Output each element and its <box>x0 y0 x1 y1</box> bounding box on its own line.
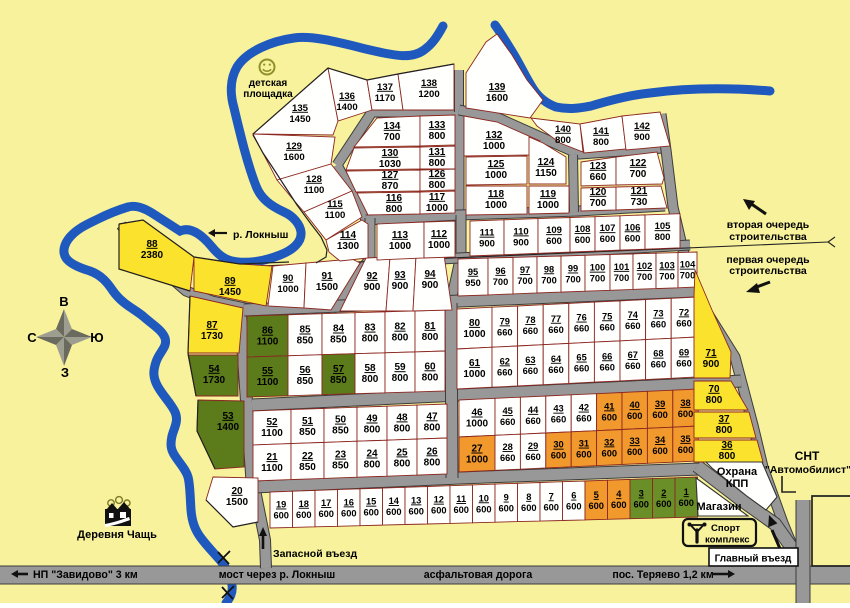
svg-text:59: 59 <box>394 362 406 373</box>
svg-text:79: 79 <box>500 316 510 326</box>
svg-text:Деревня Чащь: Деревня Чащь <box>77 529 157 541</box>
svg-text:43: 43 <box>553 404 563 414</box>
svg-text:660: 660 <box>676 318 692 328</box>
svg-text:102: 102 <box>637 261 653 271</box>
svg-text:1170: 1170 <box>375 93 396 104</box>
svg-text:135: 135 <box>292 103 309 114</box>
svg-text:1450: 1450 <box>289 114 310 125</box>
svg-text:Главный въезд: Главный въезд <box>715 554 792 565</box>
svg-text:33: 33 <box>630 436 640 446</box>
svg-text:6: 6 <box>571 491 576 501</box>
svg-text:30: 30 <box>553 440 563 450</box>
svg-text:850: 850 <box>299 462 316 473</box>
svg-text:800: 800 <box>392 373 409 384</box>
svg-text:660: 660 <box>497 367 513 377</box>
svg-text:88: 88 <box>146 239 158 250</box>
svg-text:900: 900 <box>479 239 495 250</box>
svg-text:850: 850 <box>330 375 347 386</box>
svg-text:3: 3 <box>639 489 644 499</box>
svg-text:600: 600 <box>546 236 562 247</box>
svg-text:111: 111 <box>480 228 496 239</box>
svg-text:1000: 1000 <box>485 200 508 211</box>
svg-text:р. Локныш: р. Локныш <box>233 229 288 241</box>
svg-text:44: 44 <box>528 405 539 415</box>
svg-text:800: 800 <box>392 333 409 344</box>
svg-text:45: 45 <box>503 406 513 416</box>
svg-text:600: 600 <box>678 498 694 508</box>
svg-text:1100: 1100 <box>325 210 346 221</box>
svg-text:86: 86 <box>262 326 274 337</box>
svg-text:100: 100 <box>590 263 606 273</box>
svg-text:76: 76 <box>576 313 586 323</box>
svg-text:660: 660 <box>525 416 541 426</box>
svg-text:115: 115 <box>327 199 343 210</box>
svg-text:83: 83 <box>364 323 376 334</box>
svg-text:96: 96 <box>495 266 505 276</box>
svg-text:600: 600 <box>602 448 618 458</box>
svg-text:800: 800 <box>593 137 609 148</box>
svg-text:660: 660 <box>625 361 641 371</box>
svg-text:130: 130 <box>382 148 399 159</box>
svg-text:1000: 1000 <box>463 329 486 340</box>
svg-text:700: 700 <box>590 198 607 209</box>
svg-text:12: 12 <box>434 495 444 505</box>
svg-text:80: 80 <box>469 318 481 329</box>
svg-text:46: 46 <box>471 408 483 419</box>
svg-text:109: 109 <box>546 225 562 236</box>
svg-text:84: 84 <box>333 324 345 335</box>
svg-text:Охрана: Охрана <box>717 466 758 478</box>
svg-text:47: 47 <box>426 411 438 422</box>
svg-text:600: 600 <box>602 412 618 422</box>
svg-text:900: 900 <box>392 281 409 292</box>
svg-text:1000: 1000 <box>277 284 298 295</box>
svg-text:660: 660 <box>599 362 615 372</box>
svg-text:18: 18 <box>299 499 309 509</box>
svg-text:138: 138 <box>421 78 438 89</box>
svg-text:1150: 1150 <box>535 168 557 179</box>
svg-text:1100: 1100 <box>257 377 279 388</box>
svg-text:122: 122 <box>630 158 647 169</box>
svg-text:69: 69 <box>679 347 689 357</box>
svg-text:139: 139 <box>489 82 506 93</box>
svg-text:660: 660 <box>525 452 541 462</box>
svg-text:КПП: КПП <box>726 478 749 490</box>
svg-text:11: 11 <box>456 494 466 504</box>
svg-text:19: 19 <box>276 500 286 510</box>
svg-text:660: 660 <box>576 414 592 424</box>
svg-text:700: 700 <box>541 275 557 285</box>
svg-text:1100: 1100 <box>261 428 283 439</box>
svg-text:600: 600 <box>633 500 649 510</box>
svg-text:90: 90 <box>283 273 294 284</box>
svg-text:91: 91 <box>321 271 333 282</box>
svg-text:800: 800 <box>362 334 379 345</box>
svg-text:мост через р. Локныш: мост через р. Локныш <box>219 569 336 581</box>
svg-text:600: 600 <box>627 411 643 421</box>
svg-text:31: 31 <box>579 439 589 449</box>
svg-text:700: 700 <box>565 275 581 285</box>
svg-text:26: 26 <box>426 446 438 457</box>
svg-text:600: 600 <box>318 509 334 519</box>
svg-text:600: 600 <box>273 511 289 521</box>
svg-text:110: 110 <box>513 226 528 237</box>
svg-text:134: 134 <box>384 121 401 132</box>
svg-text:660: 660 <box>500 417 516 427</box>
svg-text:900: 900 <box>634 132 650 143</box>
svg-text:600: 600 <box>498 504 514 514</box>
svg-text:660: 660 <box>548 365 564 375</box>
svg-text:1730: 1730 <box>201 331 224 342</box>
svg-text:81: 81 <box>424 321 436 332</box>
svg-text:41: 41 <box>604 401 614 411</box>
svg-text:700: 700 <box>517 276 533 286</box>
svg-text:112: 112 <box>431 229 448 240</box>
svg-text:94: 94 <box>424 269 436 280</box>
svg-text:142: 142 <box>634 121 650 132</box>
svg-text:132: 132 <box>486 130 503 141</box>
svg-text:660: 660 <box>523 326 539 336</box>
svg-text:23: 23 <box>335 450 347 461</box>
svg-text:13: 13 <box>411 495 421 505</box>
svg-text:600: 600 <box>296 510 312 520</box>
svg-text:141: 141 <box>593 126 610 137</box>
svg-text:99: 99 <box>568 264 578 274</box>
svg-text:1450: 1450 <box>219 287 242 298</box>
svg-text:73: 73 <box>653 309 663 319</box>
svg-text:660: 660 <box>574 364 590 374</box>
svg-text:850: 850 <box>297 376 314 387</box>
svg-text:СНТ: СНТ <box>795 449 820 463</box>
svg-text:900: 900 <box>364 282 381 293</box>
svg-text:660: 660 <box>625 321 641 331</box>
svg-text:36: 36 <box>721 440 733 451</box>
svg-text:660: 660 <box>551 415 567 425</box>
svg-text:З: З <box>61 365 69 380</box>
svg-text:800: 800 <box>364 460 381 471</box>
svg-text:1100: 1100 <box>257 337 279 348</box>
svg-text:850: 850 <box>299 427 316 438</box>
svg-text:2: 2 <box>661 488 666 498</box>
svg-text:103: 103 <box>659 260 675 270</box>
svg-text:600: 600 <box>431 506 447 516</box>
svg-text:14: 14 <box>389 496 400 506</box>
svg-text:136: 136 <box>339 91 355 102</box>
svg-text:106: 106 <box>625 222 641 233</box>
svg-text:870: 870 <box>382 181 399 192</box>
svg-text:125: 125 <box>488 159 505 170</box>
svg-text:77: 77 <box>551 314 561 324</box>
svg-text:128: 128 <box>306 174 323 185</box>
svg-text:29: 29 <box>528 441 538 451</box>
svg-text:660: 660 <box>676 358 692 368</box>
svg-text:35: 35 <box>680 434 690 444</box>
svg-text:1000: 1000 <box>466 455 489 466</box>
svg-text:65: 65 <box>576 353 586 363</box>
svg-text:63: 63 <box>525 355 535 365</box>
svg-text:детская: детская <box>249 78 288 89</box>
svg-text:38: 38 <box>680 398 690 408</box>
svg-text:34: 34 <box>655 435 666 445</box>
svg-text:1000: 1000 <box>485 170 508 181</box>
svg-text:124: 124 <box>538 157 555 168</box>
svg-text:133: 133 <box>429 120 446 131</box>
svg-text:85: 85 <box>299 325 311 336</box>
svg-text:56: 56 <box>299 365 311 376</box>
svg-text:800: 800 <box>386 204 403 215</box>
svg-text:600: 600 <box>652 410 668 420</box>
svg-text:1000: 1000 <box>428 240 451 251</box>
svg-text:асфальтовая дорога: асфальтовая дорога <box>424 569 533 581</box>
svg-text:1500: 1500 <box>226 497 249 508</box>
svg-text:600: 600 <box>576 450 592 460</box>
svg-text:61: 61 <box>469 358 481 369</box>
svg-text:800: 800 <box>716 425 733 436</box>
svg-text:93: 93 <box>394 270 406 281</box>
svg-text:37: 37 <box>718 414 730 425</box>
svg-text:123: 123 <box>590 161 607 172</box>
svg-text:5: 5 <box>594 490 599 500</box>
svg-text:40: 40 <box>630 400 640 410</box>
svg-text:660: 660 <box>500 453 516 463</box>
svg-text:107: 107 <box>600 223 616 234</box>
svg-text:127: 127 <box>382 170 399 181</box>
svg-text:118: 118 <box>488 189 505 200</box>
svg-text:850: 850 <box>330 335 347 346</box>
svg-text:48: 48 <box>396 412 408 423</box>
svg-text:"Автомобилист": "Автомобилист" <box>765 464 850 476</box>
svg-text:10: 10 <box>479 493 489 503</box>
svg-text:600: 600 <box>551 451 567 461</box>
svg-text:1300: 1300 <box>337 241 360 252</box>
svg-text:600: 600 <box>678 409 694 419</box>
svg-text:600: 600 <box>408 506 424 516</box>
svg-text:Магазин: Магазин <box>696 501 741 513</box>
svg-text:1600: 1600 <box>283 152 304 163</box>
svg-text:75: 75 <box>602 311 612 321</box>
svg-text:51: 51 <box>302 416 314 427</box>
svg-text:22: 22 <box>302 451 314 462</box>
svg-text:49: 49 <box>366 414 378 425</box>
svg-text:117: 117 <box>429 192 446 203</box>
svg-text:113: 113 <box>392 230 409 241</box>
svg-text:114: 114 <box>340 230 357 241</box>
svg-text:строительства: строительства <box>729 231 807 243</box>
svg-text:68: 68 <box>653 349 663 359</box>
svg-text:600: 600 <box>600 234 616 245</box>
svg-text:17: 17 <box>321 498 331 508</box>
svg-text:50: 50 <box>335 415 347 426</box>
svg-text:Запасной въезд: Запасной въезд <box>273 548 357 560</box>
svg-text:62: 62 <box>500 356 510 366</box>
svg-text:660: 660 <box>651 320 667 330</box>
svg-text:1000: 1000 <box>466 419 489 430</box>
svg-text:1030: 1030 <box>379 159 402 170</box>
svg-text:54: 54 <box>208 364 220 375</box>
svg-text:пос. Теряево 1,2 км: пос. Теряево 1,2 км <box>612 569 714 581</box>
svg-text:120: 120 <box>590 187 607 198</box>
svg-text:97: 97 <box>520 265 530 275</box>
svg-text:660: 660 <box>523 366 539 376</box>
svg-text:1000: 1000 <box>537 200 560 211</box>
svg-text:1730: 1730 <box>203 375 226 386</box>
svg-text:1200: 1200 <box>418 89 439 100</box>
svg-text:600: 600 <box>386 507 402 517</box>
svg-text:52: 52 <box>266 417 278 428</box>
svg-text:600: 600 <box>627 447 643 457</box>
svg-text:78: 78 <box>525 315 535 325</box>
svg-text:660: 660 <box>651 360 667 370</box>
svg-text:вторая очередь: вторая очередь <box>727 219 810 231</box>
svg-text:900: 900 <box>513 237 529 248</box>
svg-text:1: 1 <box>684 487 689 497</box>
svg-text:53: 53 <box>222 411 234 422</box>
svg-text:8: 8 <box>526 492 531 502</box>
svg-text:137: 137 <box>377 82 393 93</box>
svg-text:57: 57 <box>333 364 345 375</box>
svg-text:98: 98 <box>544 264 554 274</box>
svg-text:129: 129 <box>286 141 302 152</box>
svg-text:126: 126 <box>429 169 446 180</box>
svg-text:900: 900 <box>422 280 439 291</box>
svg-text:72: 72 <box>679 307 689 317</box>
svg-text:В: В <box>59 294 68 309</box>
svg-text:32: 32 <box>604 437 614 447</box>
svg-text:800: 800 <box>422 332 439 343</box>
svg-text:660: 660 <box>497 327 513 337</box>
svg-text:600: 600 <box>476 504 492 514</box>
svg-text:660: 660 <box>599 322 615 332</box>
svg-text:104: 104 <box>680 260 696 270</box>
svg-text:600: 600 <box>625 233 641 244</box>
svg-text:700: 700 <box>659 271 675 281</box>
svg-text:140: 140 <box>555 124 571 135</box>
svg-text:НП "Завидово" 3 км: НП "Завидово" 3 км <box>33 569 138 581</box>
svg-text:58: 58 <box>364 363 376 374</box>
svg-text:66: 66 <box>602 351 612 361</box>
svg-text:800: 800 <box>719 451 736 462</box>
svg-text:121: 121 <box>631 186 648 197</box>
svg-text:600: 600 <box>575 235 591 246</box>
svg-text:1400: 1400 <box>336 102 357 113</box>
svg-text:15: 15 <box>366 497 376 507</box>
svg-text:600: 600 <box>521 503 537 513</box>
svg-text:730: 730 <box>631 197 648 208</box>
svg-text:64: 64 <box>551 354 562 364</box>
svg-text:1000: 1000 <box>483 141 506 152</box>
svg-text:800: 800 <box>706 395 723 406</box>
svg-text:800: 800 <box>429 158 446 169</box>
svg-text:800: 800 <box>424 457 441 468</box>
svg-text:800: 800 <box>362 374 379 385</box>
svg-text:800: 800 <box>422 372 439 383</box>
svg-text:95: 95 <box>468 267 478 277</box>
svg-text:9: 9 <box>504 493 509 503</box>
svg-text:Ю: Ю <box>90 330 103 345</box>
svg-text:850: 850 <box>297 336 314 347</box>
svg-text:600: 600 <box>543 502 559 512</box>
svg-text:7: 7 <box>549 491 554 501</box>
svg-text:800: 800 <box>424 422 441 433</box>
svg-text:700: 700 <box>680 271 696 281</box>
svg-text:строительства: строительства <box>729 265 807 277</box>
svg-text:105: 105 <box>655 221 672 232</box>
svg-text:1500: 1500 <box>316 282 339 293</box>
svg-text:900: 900 <box>703 359 720 370</box>
svg-text:21: 21 <box>266 452 278 463</box>
svg-text:131: 131 <box>429 147 446 158</box>
svg-text:600: 600 <box>652 446 668 456</box>
svg-text:108: 108 <box>575 224 591 235</box>
svg-text:700: 700 <box>590 274 606 284</box>
svg-text:20: 20 <box>231 486 243 497</box>
svg-text:600: 600 <box>588 501 604 511</box>
svg-text:60: 60 <box>424 361 436 372</box>
svg-text:92: 92 <box>366 271 378 282</box>
svg-text:1100: 1100 <box>304 185 325 196</box>
svg-text:950: 950 <box>465 278 481 288</box>
svg-text:74: 74 <box>628 310 639 320</box>
svg-text:800: 800 <box>364 425 381 436</box>
svg-text:1000: 1000 <box>463 369 486 380</box>
svg-text:25: 25 <box>396 447 408 458</box>
svg-text:82: 82 <box>394 322 406 333</box>
svg-text:70: 70 <box>708 384 720 395</box>
svg-text:4: 4 <box>616 489 622 499</box>
svg-text:600: 600 <box>566 502 582 512</box>
svg-text:71: 71 <box>705 348 717 359</box>
svg-text:800: 800 <box>655 232 671 243</box>
svg-text:87: 87 <box>206 320 218 331</box>
svg-text:800: 800 <box>429 180 446 191</box>
svg-text:1600: 1600 <box>486 93 509 104</box>
svg-text:24: 24 <box>366 449 378 460</box>
svg-text:С: С <box>27 330 37 345</box>
svg-text:660: 660 <box>590 172 607 183</box>
svg-text:16: 16 <box>344 497 354 507</box>
svg-text:1100: 1100 <box>261 463 283 474</box>
svg-text:700: 700 <box>630 169 647 180</box>
svg-text:116: 116 <box>386 193 403 204</box>
svg-text:600: 600 <box>341 508 357 518</box>
svg-text:2380: 2380 <box>141 250 164 261</box>
svg-text:660: 660 <box>574 324 590 334</box>
svg-text:67: 67 <box>628 350 638 360</box>
svg-text:800: 800 <box>555 135 571 146</box>
svg-text:Спорт: Спорт <box>711 523 740 534</box>
svg-text:800: 800 <box>429 131 446 142</box>
svg-text:800: 800 <box>394 423 411 434</box>
svg-text:600: 600 <box>656 499 672 509</box>
svg-text:700: 700 <box>493 277 509 287</box>
svg-text:600: 600 <box>453 505 469 515</box>
svg-text:660: 660 <box>548 325 564 335</box>
svg-text:28: 28 <box>503 442 513 452</box>
svg-text:1000: 1000 <box>426 203 449 214</box>
svg-text:850: 850 <box>332 461 349 472</box>
svg-text:39: 39 <box>655 399 665 409</box>
svg-text:89: 89 <box>224 276 236 287</box>
svg-text:700: 700 <box>637 272 653 282</box>
svg-text:комплекс: комплекс <box>705 535 750 546</box>
svg-text:600: 600 <box>611 500 627 510</box>
svg-text:600: 600 <box>363 508 379 518</box>
svg-text:1400: 1400 <box>217 422 240 433</box>
svg-text:850: 850 <box>332 426 349 437</box>
svg-text:27: 27 <box>471 444 483 455</box>
svg-text:700: 700 <box>384 132 401 143</box>
svg-text:42: 42 <box>579 403 589 413</box>
